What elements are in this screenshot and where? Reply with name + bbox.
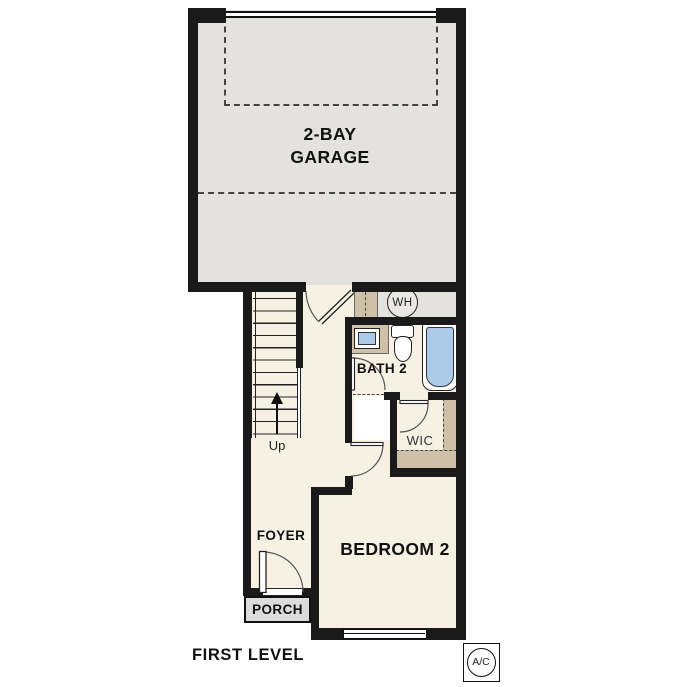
wic-label: WIC — [402, 433, 438, 448]
entry-door-leaf — [260, 552, 267, 593]
entry-door-arc — [263, 552, 303, 592]
wic-door-arc — [400, 404, 428, 432]
garage-entry-door-arc — [306, 291, 319, 322]
garage-entry-door-leaf — [319, 290, 354, 324]
up-label: Up — [263, 438, 291, 453]
bath-label: BATH 2 — [352, 361, 412, 376]
bedroom-door-leaf — [351, 443, 383, 446]
garage-label-line1: 2-BAY — [250, 123, 410, 146]
bedroom-door-arc — [351, 444, 383, 476]
ac-label: A/C — [472, 656, 490, 668]
plan-title: FIRST LEVEL — [192, 646, 316, 665]
floor-plan: WH PORCH — [0, 0, 687, 687]
foyer-label: FOYER — [253, 528, 309, 543]
garage-label: 2-BAY GARAGE — [250, 123, 410, 169]
door-swings — [0, 0, 687, 687]
wic-door-leaf — [400, 401, 428, 404]
bedroom-label: BEDROOM 2 — [328, 539, 462, 560]
ac-unit: A/C — [463, 643, 500, 682]
ac-circle: A/C — [467, 648, 496, 677]
garage-label-line2: GARAGE — [250, 146, 410, 169]
